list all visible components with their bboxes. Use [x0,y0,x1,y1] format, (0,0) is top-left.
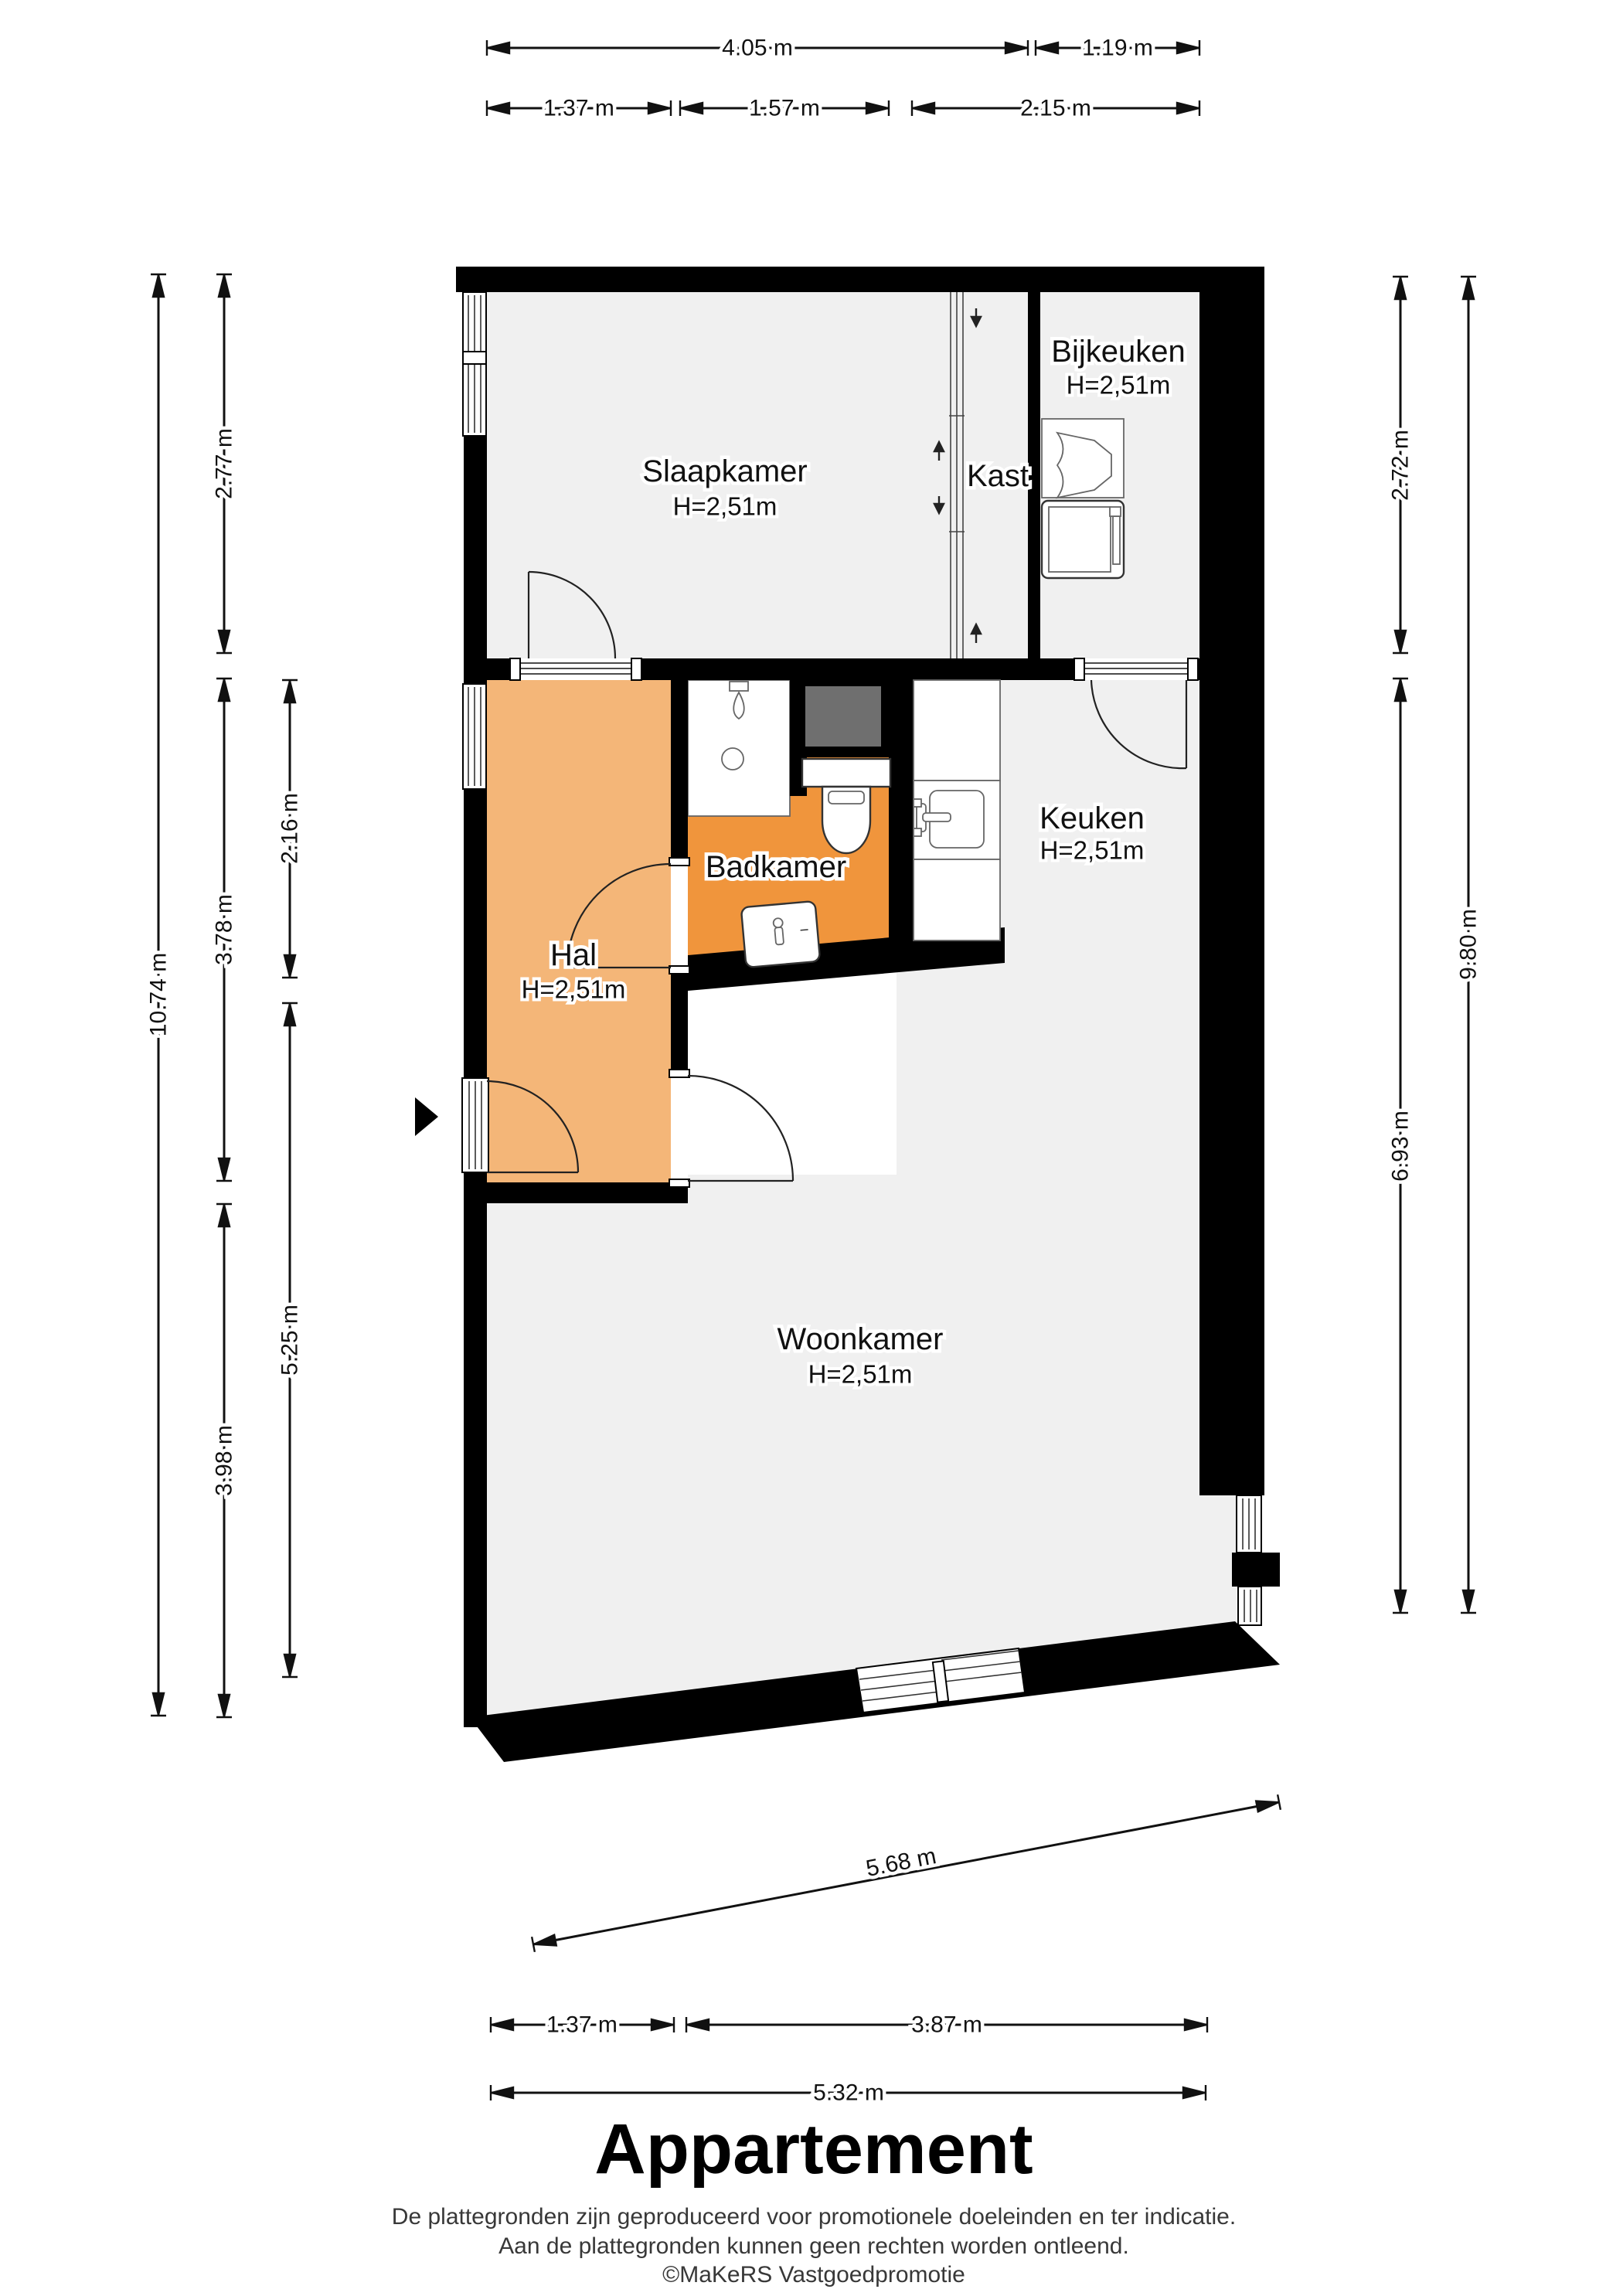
wall-hal-bottom [464,1182,688,1203]
woonkamer-label: Woonkamer [777,1322,944,1356]
dim-left-398: 3.98 m [212,1425,237,1496]
disclaimer-line-2: Aan de plattegronden kunnen geen rechten… [498,2233,1129,2259]
keuken-label: Keuken [1039,801,1145,835]
bijkeuken-height: H=2,51m [1067,371,1171,400]
dim-right-693: 6.93 m [1388,1111,1414,1182]
dim-top-119: 1.19 m [1082,36,1153,61]
wall-badkamer-keuken [889,680,914,951]
dim-bottom-387: 3.87 m [911,2012,982,2038]
badkamer-label: Badkamer [706,850,846,884]
dim-top-215: 2.15 m [1020,96,1091,121]
wall-kast-bijkeuken [1028,292,1040,663]
shaft-icon [805,686,881,747]
dim-left-1074: 10.74 m [146,953,172,1036]
disclaimer-line-1: De plattegronden zijn geproduceerd voor … [392,2204,1236,2230]
kast-label: Kast [967,459,1029,493]
bijkeuken-label: Bijkeuken [1051,335,1185,369]
dim-bottom-568: 5.68 m [864,1843,938,1882]
keuken-height: H=2,51m [1040,836,1145,865]
dim-right-980: 9.80 m [1456,909,1482,980]
dim-top-157: 1.57 m [749,96,820,121]
slaapkamer-height: H=2,51m [673,492,777,521]
entrance-arrow-icon [415,1097,438,1136]
window-woonkamer-right-upper [1237,1495,1261,1553]
wall-left [464,267,487,1727]
woonkamer-height: H=2,51m [808,1360,913,1389]
page-title: Appartement [594,2110,1033,2189]
hal-label: Hal [550,938,597,972]
floorplan-page: Slaapkamer H=2,51m Kast Bijkeuken H=2,51… [0,0,1623,2296]
wall-top [456,267,1264,292]
floorplan-canvas: Slaapkamer H=2,51m Kast Bijkeuken H=2,51… [0,0,1623,2296]
dim-left-277: 2.77 m [212,428,237,499]
dim-top-137: 1.37 m [543,96,614,121]
hal-height: H=2,51m [522,975,626,1004]
dim-bottom-532: 5.32 m [813,2080,884,2106]
dim-bottom-137: 1.37 m [546,2012,618,2038]
dim-top-405: 4.05 m [722,36,793,61]
woonkamer-floor-west [487,1175,897,1720]
title-block: Appartement De plattegronden zijn geprod… [392,2110,1236,2287]
dim-left-525: 5.25 m [277,1304,303,1376]
dim-left-216: 2.16 m [277,793,303,864]
shower-tray-icon [741,901,820,968]
slaapkamer-label: Slaapkamer [642,454,807,488]
dim-left-378: 3.78 m [212,894,237,965]
window-hal-left [463,684,486,789]
window-woonkamer-right-lower [1238,1587,1261,1625]
window-slaapkamer-left [463,292,486,436]
hal-floor [487,680,671,1190]
wall-right [1199,267,1264,1495]
kitchen-counter [914,680,1000,941]
dim-right-272: 2.72 m [1388,430,1414,501]
appliance-top-icon [1042,419,1124,498]
washing-machine-icon [1042,501,1124,578]
disclaimer-copyright: ©MaKeRS Vastgoedpromotie [662,2262,965,2287]
wall-right-step-block [1232,1553,1280,1587]
door-woonkamer [669,1070,793,1187]
